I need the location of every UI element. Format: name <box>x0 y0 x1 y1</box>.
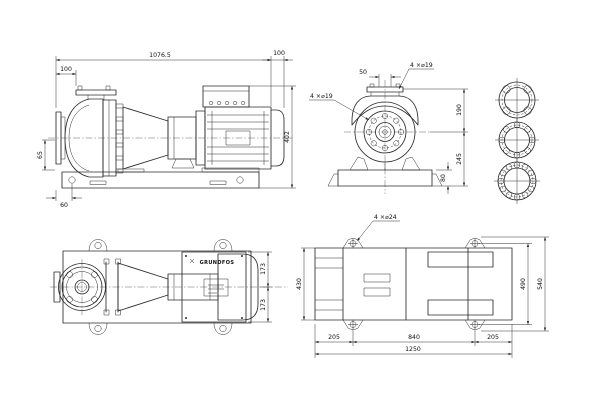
grundfos-logo-text: GRUNDFOS <box>200 260 235 266</box>
dim-label-overall-length: 1076.5 <box>149 52 171 59</box>
drawing-canvas: 1076.5 100 100 65 60 <box>0 0 600 400</box>
callout-label-suction-holes: 4 ×⌀19 <box>310 93 333 100</box>
dim-label-left-width: 430 <box>296 278 303 290</box>
dim-label-center-to-base: 245 <box>456 153 463 165</box>
callout-label-base-holes: 4 ×⌀24 <box>374 214 397 221</box>
dim-label-half-width-rear: 173 <box>260 299 267 311</box>
pump-dimensional-drawing: 1076.5 100 100 65 60 <box>0 0 600 400</box>
dim-label-center-to-top: 190 <box>456 104 463 116</box>
dim-label-port-width: 50 <box>359 69 367 76</box>
dim-label-base-height: 80 <box>440 174 447 182</box>
callout-label-discharge-holes: 4 ×⌀19 <box>410 62 433 69</box>
dim-label-overall-height: 402 <box>284 131 291 143</box>
dim-label-overall-length: 1250 <box>405 346 421 353</box>
dim-label-overall-width: 540 <box>537 278 544 290</box>
dim-label-motor-end: 100 <box>273 50 285 57</box>
dim-label-suction-offset: 100 <box>60 66 72 73</box>
dim-label-half-width-front: 173 <box>260 263 267 275</box>
dim-label-right-margin: 205 <box>487 334 499 341</box>
dim-label-hole-span-length: 840 <box>408 334 420 341</box>
dim-label-hole-span-width: 490 <box>520 278 527 290</box>
dim-label-left-margin: 205 <box>328 334 340 341</box>
dim-label-suction-height: 65 <box>37 151 44 159</box>
dim-label-hole-offset: 60 <box>60 202 68 209</box>
